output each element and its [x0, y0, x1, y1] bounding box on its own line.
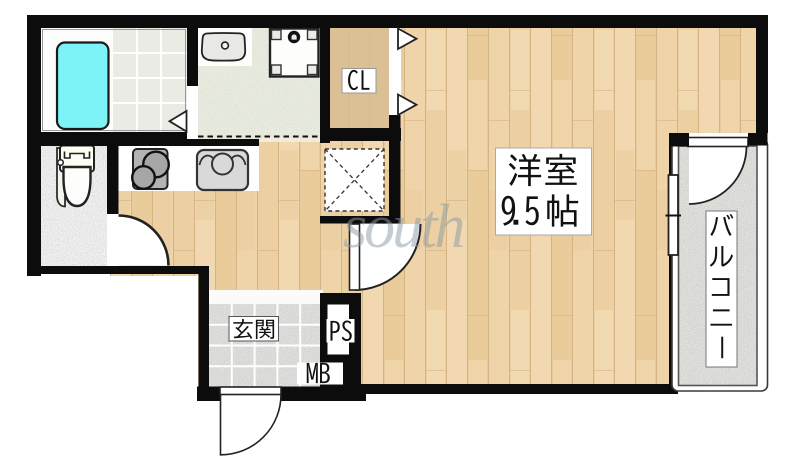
- svg-text:south: south: [343, 193, 463, 261]
